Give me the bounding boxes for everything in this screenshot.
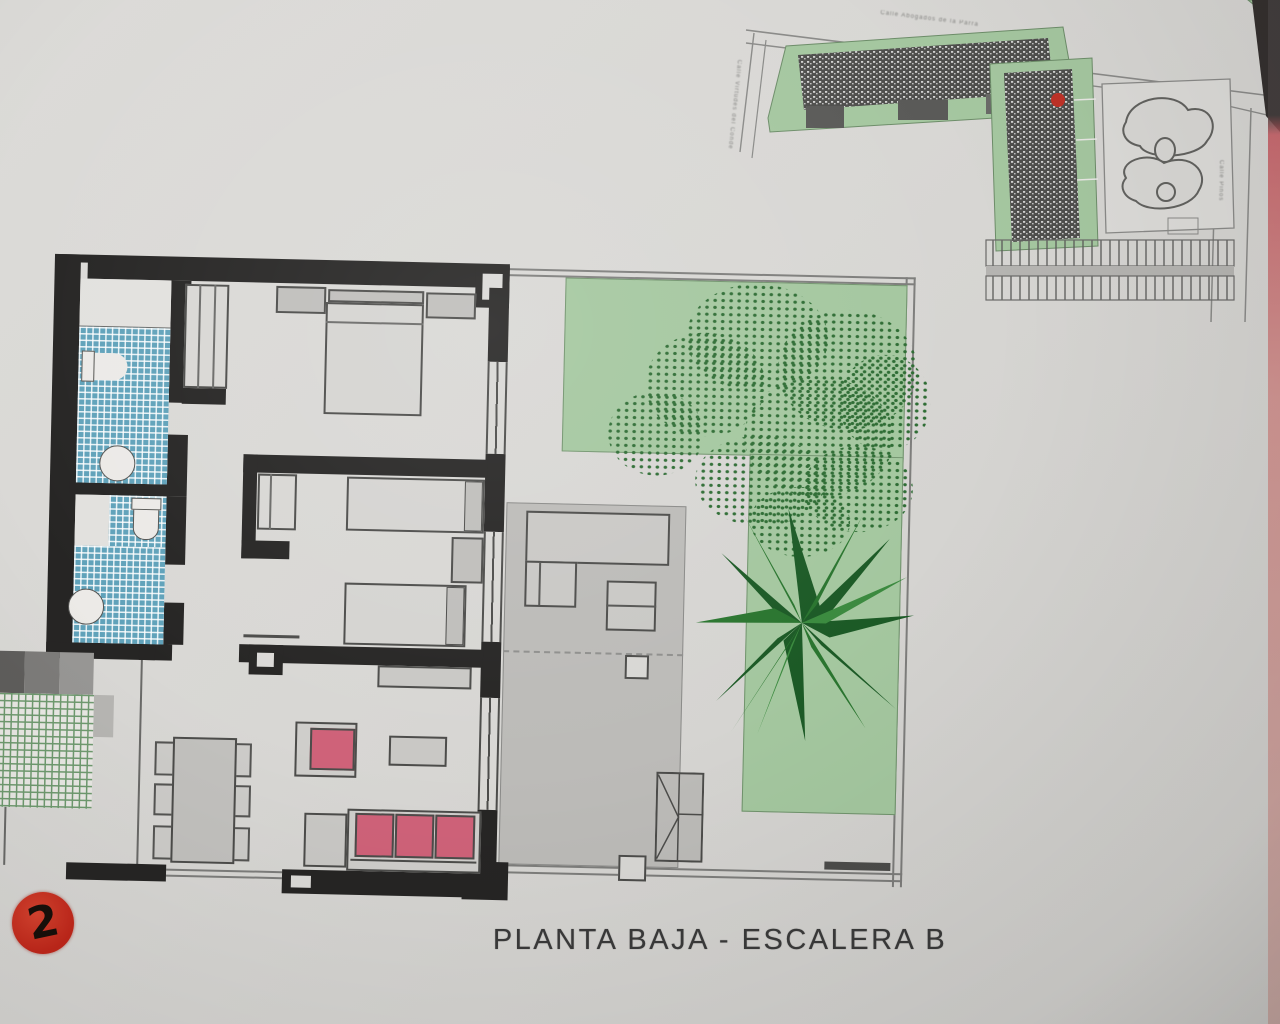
wall-living-west	[136, 660, 143, 868]
side-table	[303, 813, 347, 868]
floor-plan	[0, 0, 1280, 1024]
bathroom2-nook	[74, 494, 109, 546]
terrace-sofa-arm	[524, 561, 577, 608]
bathroom1-vanity	[79, 278, 171, 328]
sofa-cushion	[354, 813, 394, 858]
bedroom1-nightstand-right	[426, 292, 477, 319]
barbecue	[654, 772, 704, 863]
floor-plan-photo: Calle Abogados de la Parra Calle Virtude…	[0, 0, 1280, 1024]
bedroom1-bed	[323, 302, 424, 416]
bedroom1-nightstand-left	[276, 286, 327, 314]
sofa-cushion	[394, 814, 434, 859]
terrace-stool	[625, 655, 650, 680]
sideboard	[377, 665, 471, 689]
dining-table	[170, 737, 237, 864]
unit-number: 2	[23, 898, 62, 947]
porch-railing	[0, 807, 6, 865]
bedroom2-wardrobe	[257, 474, 297, 531]
plan-title: PLANTA BAJA - ESCALERA B	[420, 924, 1020, 957]
terrace-planter	[618, 855, 647, 882]
bedroom2-nightstand	[451, 537, 484, 584]
wall-bed1-stub	[182, 388, 226, 405]
toilet-2	[133, 508, 160, 541]
coffee-table	[389, 736, 448, 767]
bedroom1-wardrobe	[183, 284, 229, 389]
toilet-1	[93, 353, 128, 381]
bedroom1-window	[486, 362, 508, 454]
photo-page-edge	[1268, 0, 1280, 1024]
entry-steps	[0, 651, 25, 694]
threshold-line	[243, 634, 299, 638]
armchair	[309, 728, 355, 771]
garden-gate	[824, 861, 890, 870]
porch-fence	[166, 869, 282, 880]
wall-hall-3	[165, 496, 187, 564]
terrace-sofa	[525, 511, 670, 566]
porch-wall	[66, 862, 166, 881]
bedroom2-window	[481, 532, 503, 642]
wall-hall-2	[167, 434, 188, 496]
sofa-cushion	[434, 815, 475, 860]
garden-palm-plant	[687, 492, 919, 755]
porch-step	[93, 695, 114, 737]
wall-living-bottom	[282, 869, 478, 897]
living-terrace-door	[478, 698, 501, 810]
unit-number-badge: 2	[12, 892, 74, 954]
wall-hall-4	[163, 602, 184, 644]
porch-tiles	[0, 693, 94, 809]
